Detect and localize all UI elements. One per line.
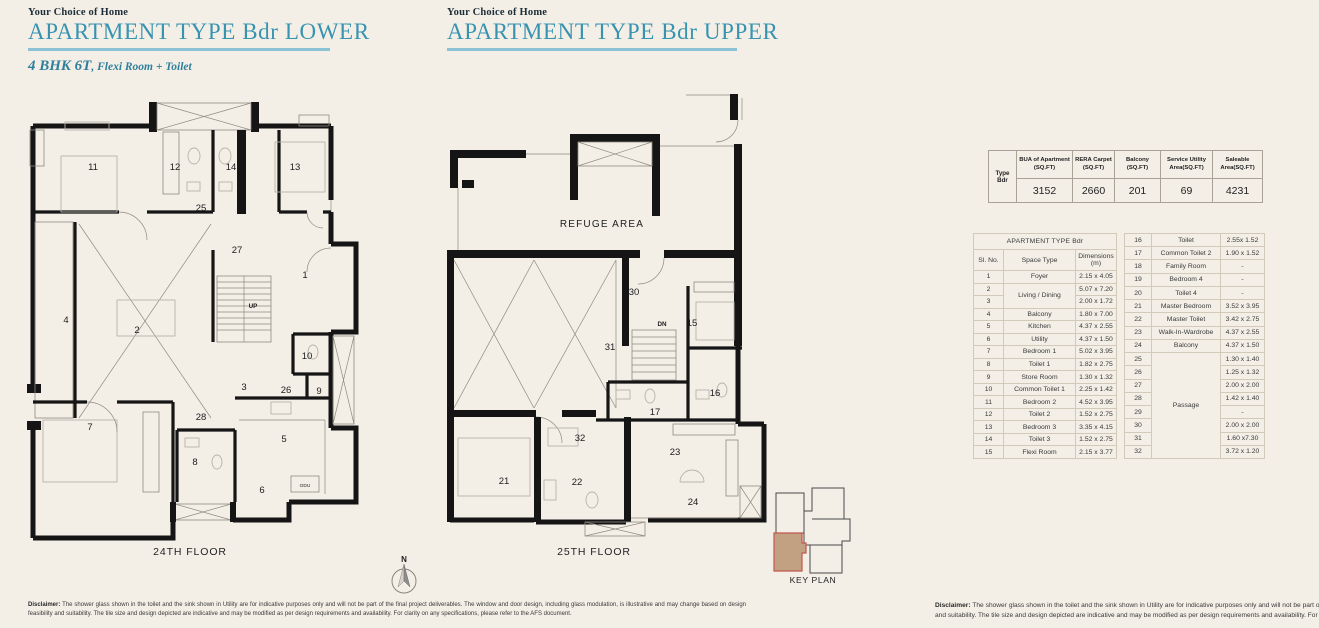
disclaimer-right-text: The shower glass shown in the toilet and… <box>935 602 1319 619</box>
plan-label: 11 <box>88 162 98 173</box>
brochure-page: Your Choice of Home APARTMENT TYPE Bdr L… <box>0 0 1319 628</box>
plan-label: 12 <box>170 162 181 173</box>
plan-label: 24 <box>688 497 699 508</box>
plan-label: 1 <box>302 270 307 281</box>
plan-label: 4 <box>63 315 68 326</box>
walls-upper <box>447 94 764 522</box>
plan-label: 13 <box>290 162 301 173</box>
page-title-lower: APARTMENT TYPE Bdr LOWER <box>28 19 370 45</box>
room-table-left-body: APARTMENT TYPE BdrSl. No.Space TypeDimen… <box>974 234 1117 459</box>
plan-label: REFUGE AREA <box>560 219 644 230</box>
room-table-left: APARTMENT TYPE BdrSl. No.Space TypeDimen… <box>973 233 1117 459</box>
room-table-right: 16Toilet2.55x 1.5217Common Toilet 21.90 … <box>1124 233 1265 459</box>
plan-label: 9 <box>316 386 321 397</box>
disclaimer-left: Disclaimer: The shower glass shown in th… <box>28 601 746 619</box>
disclaimer-left-label: Disclaimer: <box>28 602 60 608</box>
plan-label: 26 <box>281 385 292 396</box>
compass-north-label: N <box>401 555 407 564</box>
plan-label: 27 <box>232 245 243 256</box>
plan-label: 15 <box>687 318 698 329</box>
plan-caption-upper: 25TH FLOOR <box>557 546 631 558</box>
summary-table-body: Type BdrBUA of Apartment (SQ.FT)RERA Car… <box>989 151 1263 203</box>
eyebrow-lower: Your Choice of Home <box>28 7 370 18</box>
title-underline-lower <box>28 48 330 51</box>
plan-label: 7 <box>87 422 92 433</box>
header-upper: Your Choice of Home APARTMENT TYPE Bdr U… <box>447 7 778 51</box>
plan-caption-lower: 24TH FLOOR <box>153 546 227 558</box>
plan-label: 25 <box>196 203 207 214</box>
plan-label: 22 <box>572 477 583 488</box>
plan-label: DN <box>657 321 667 328</box>
disclaimer-right-label: Disclaimer: <box>935 602 971 609</box>
floor-plan-lower: 1112141325271UP42103269287586ODU 24TH FL… <box>25 90 370 568</box>
plan-label: 28 <box>196 412 207 423</box>
key-plan: KEY PLAN <box>760 481 872 587</box>
plan-label: 23 <box>670 447 681 458</box>
plan-label: 5 <box>281 434 286 445</box>
plan-label: 21 <box>499 476 510 487</box>
floor-plan-upper: REFUGE AREA3015DN3116173223212224 25TH F… <box>440 90 785 568</box>
plan-label: 17 <box>650 407 661 418</box>
key-plan-highlighted-unit <box>774 533 806 571</box>
disclaimer-right: Disclaimer: The shower glass shown in th… <box>935 601 1319 621</box>
plan-label: 32 <box>575 433 586 444</box>
north-compass-icon: N <box>383 551 427 601</box>
plan-label: 30 <box>629 287 640 298</box>
title-underline-upper <box>447 48 737 51</box>
subtitle-flexi: , Flexi Room + Toilet <box>91 61 191 73</box>
room-table-right-body: 16Toilet2.55x 1.5217Common Toilet 21.90 … <box>1125 234 1265 459</box>
plan-label: 2 <box>134 325 139 336</box>
eyebrow-upper: Your Choice of Home <box>447 7 778 18</box>
page-title-upper: APARTMENT TYPE Bdr UPPER <box>447 19 778 45</box>
header-lower: Your Choice of Home APARTMENT TYPE Bdr L… <box>28 7 370 75</box>
plan-label: UP <box>249 303 258 310</box>
plan-label: 3 <box>241 382 246 393</box>
plan-label: 31 <box>605 342 616 353</box>
summary-table: Type BdrBUA of Apartment (SQ.FT)RERA Car… <box>988 150 1263 203</box>
room-dimensions-table: APARTMENT TYPE BdrSl. No.Space TypeDimen… <box>973 233 1265 459</box>
disclaimer-right-clip: Disclaimer: The shower glass shown in th… <box>935 601 1319 621</box>
subtitle-lower: 4 BHK 6T, Flexi Room + Toilet <box>28 57 370 75</box>
plan-label: 8 <box>192 457 197 468</box>
plan-label: 10 <box>302 351 313 362</box>
plan-label: 16 <box>710 388 721 399</box>
disclaimer-left-text: The shower glass shown in the toilet and… <box>28 602 746 617</box>
plan-label: ODU <box>300 483 311 489</box>
subtitle-bhk: 4 BHK 6T <box>28 58 91 74</box>
key-plan-caption: KEY PLAN <box>790 575 837 585</box>
plan-label: 6 <box>259 485 264 496</box>
plan-label: 14 <box>226 162 237 173</box>
